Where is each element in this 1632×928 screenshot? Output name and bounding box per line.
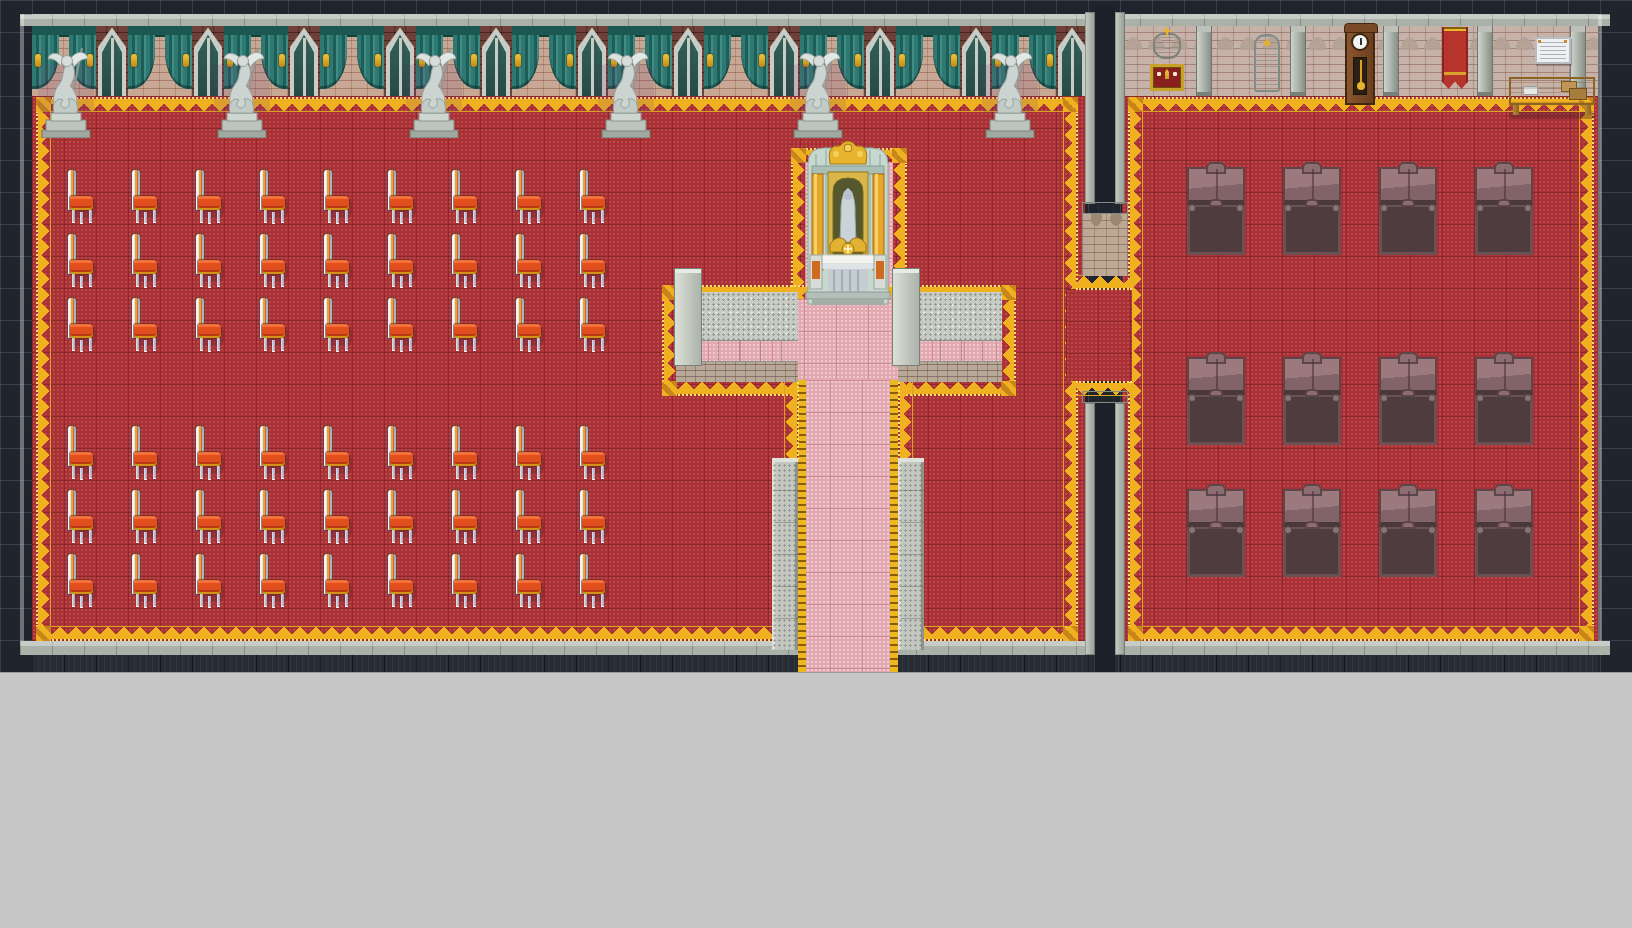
chair-leg <box>520 210 523 222</box>
sanctuary-pillar <box>892 268 920 366</box>
arch-niche-row <box>1122 32 1598 50</box>
chapel-chair[interactable] <box>449 168 479 224</box>
chair-leg <box>584 466 587 478</box>
chair-leg <box>345 274 348 286</box>
bookshelf[interactable] <box>1283 167 1341 255</box>
partition-wall-face <box>1082 214 1128 276</box>
chair-leg <box>264 210 267 222</box>
chapel-chair[interactable] <box>257 232 287 288</box>
chair-leg <box>592 276 595 287</box>
chair-leg <box>153 338 156 350</box>
chapel-chair[interactable] <box>577 296 607 352</box>
chapel-chair[interactable] <box>193 296 223 352</box>
chair-leg <box>400 468 403 479</box>
chapel-chair[interactable] <box>257 424 287 480</box>
chapel-chair[interactable] <box>385 168 415 224</box>
chapel-chair[interactable] <box>385 296 415 352</box>
room-passage-floor <box>1066 289 1132 381</box>
curtain-and-arch-segment <box>320 26 416 96</box>
tassel-icon <box>759 54 765 67</box>
tassel-icon <box>375 54 381 67</box>
chair-seat <box>134 452 157 466</box>
chair-leg <box>409 210 412 222</box>
chair-leg <box>392 594 395 606</box>
chair-leg <box>72 594 75 606</box>
chapel-chair[interactable] <box>449 296 479 352</box>
chair-leg <box>520 594 523 606</box>
chair-leg <box>584 274 587 286</box>
chapel-chair[interactable] <box>577 424 607 480</box>
chapel-chair[interactable] <box>257 488 287 544</box>
chair-seat <box>198 196 221 210</box>
chair-seat <box>454 580 477 594</box>
bookshelf-crest <box>1497 521 1511 529</box>
chair-leg <box>153 210 156 222</box>
corridor-gold-trim <box>784 382 799 460</box>
chapel-chair[interactable] <box>129 552 159 608</box>
chair-leg <box>392 274 395 286</box>
chair-seat <box>262 324 285 338</box>
curtain-and-arch-segment <box>704 26 800 96</box>
chair-leg <box>328 594 331 606</box>
chair-leg <box>520 338 523 350</box>
chair-leg <box>537 210 540 222</box>
chair-leg <box>136 466 139 478</box>
chair-seat <box>134 196 157 210</box>
chapel-chair[interactable] <box>321 296 351 352</box>
chapel-chair[interactable] <box>257 296 287 352</box>
chair-leg <box>144 340 147 351</box>
chair-leg <box>200 274 203 286</box>
chair-seat <box>390 196 413 210</box>
chair-leg <box>153 466 156 478</box>
chapel-chair[interactable] <box>257 168 287 224</box>
chair-leg <box>601 466 604 478</box>
processional-carpet <box>798 380 898 672</box>
chair-seat <box>134 516 157 530</box>
chair-leg <box>136 338 139 350</box>
chair-leg <box>464 212 467 223</box>
chair-seat <box>70 260 93 274</box>
chair-leg <box>281 274 284 286</box>
chair-leg <box>264 466 267 478</box>
chair-leg <box>208 276 211 287</box>
bookshelf[interactable] <box>1187 167 1245 255</box>
chair-leg <box>217 530 220 542</box>
bookshelf-books <box>1379 205 1437 255</box>
tassel-icon <box>707 54 713 67</box>
chair-seat <box>390 324 413 338</box>
chair-seat <box>582 196 605 210</box>
chair-leg <box>72 338 75 350</box>
carpet-gold-rail <box>890 380 898 672</box>
chapel-chair[interactable] <box>577 488 607 544</box>
curtain-and-arch-segment <box>128 26 224 96</box>
bookshelf-crest <box>1497 199 1511 207</box>
bookshelf-crest <box>1401 389 1415 397</box>
chair-leg <box>537 338 540 350</box>
wall-pilaster <box>1290 26 1306 96</box>
chapel-chair[interactable] <box>193 168 223 224</box>
bookshelf[interactable] <box>1187 357 1245 445</box>
bookshelf-books <box>1187 527 1245 577</box>
chapel-chair[interactable] <box>449 552 479 608</box>
chair-leg <box>328 530 331 542</box>
chair-seat <box>518 196 541 210</box>
chair-seat <box>262 516 285 530</box>
chair-seat <box>134 580 157 594</box>
bookshelf-books <box>1283 527 1341 577</box>
angel-statue[interactable] <box>598 42 654 138</box>
bookshelf-crest <box>1209 199 1223 207</box>
chair-seat <box>262 196 285 210</box>
carpet-gold-rail <box>798 380 806 672</box>
chair-leg <box>89 338 92 350</box>
chair-leg <box>264 338 267 350</box>
chair-seat <box>134 324 157 338</box>
bookshelf-crest <box>1305 521 1319 529</box>
tassel-icon <box>855 54 861 67</box>
chair-leg <box>328 210 331 222</box>
passage-gold-trim-top <box>1076 275 1132 290</box>
chair-leg <box>456 594 459 606</box>
chapel-chair[interactable] <box>193 232 223 288</box>
bookshelf[interactable] <box>1187 489 1245 577</box>
chair-leg <box>400 212 403 223</box>
corridor-gold-trim <box>898 382 913 460</box>
chair-seat <box>582 324 605 338</box>
tassel-icon <box>183 54 189 67</box>
chair-leg <box>345 338 348 350</box>
chair-leg <box>473 210 476 222</box>
chapel-chair[interactable] <box>65 296 95 352</box>
chair-leg <box>409 530 412 542</box>
chair-seat <box>390 580 413 594</box>
library-wall <box>1122 26 1598 96</box>
chair-leg <box>281 530 284 542</box>
chair-seat <box>454 452 477 466</box>
chair-leg <box>537 466 540 478</box>
altar[interactable] <box>800 136 896 306</box>
partition-wall-side <box>1115 403 1125 655</box>
editor-empty-area <box>0 672 1632 928</box>
chair-leg <box>144 212 147 223</box>
chair-leg <box>89 530 92 542</box>
chair-leg <box>208 212 211 223</box>
tassel-icon <box>279 54 285 67</box>
chapel-chair[interactable] <box>449 232 479 288</box>
chair-leg <box>336 340 339 351</box>
angel-statue[interactable] <box>38 42 94 138</box>
chair-seat <box>390 452 413 466</box>
bookshelf-books <box>1475 527 1533 577</box>
bookshelf[interactable] <box>1475 357 1533 445</box>
curtain-and-arch-segment <box>512 26 608 96</box>
bookshelf[interactable] <box>1475 167 1533 255</box>
chair-leg <box>72 210 75 222</box>
chapel-chair[interactable] <box>321 168 351 224</box>
chapel-chair[interactable] <box>65 488 95 544</box>
chair-seat <box>70 516 93 530</box>
wall-ledge-top <box>20 14 1610 26</box>
chair-leg <box>144 276 147 287</box>
gothic-arch <box>672 26 704 96</box>
chair-leg <box>80 212 83 223</box>
chair-leg <box>144 468 147 479</box>
chapel-chair[interactable] <box>65 424 95 480</box>
partition-wall-top <box>1095 403 1115 672</box>
chair-leg <box>584 338 587 350</box>
chair-seat <box>518 452 541 466</box>
chair-leg <box>400 340 403 351</box>
chair-leg <box>520 466 523 478</box>
chair-leg <box>601 594 604 606</box>
curtain-and-arch-segment <box>896 26 992 96</box>
chapel-chair[interactable] <box>385 232 415 288</box>
chair-leg <box>473 530 476 542</box>
chair-leg <box>592 340 595 351</box>
chair-leg <box>584 530 587 542</box>
tassel-icon <box>663 54 669 67</box>
chair-leg <box>144 532 147 543</box>
chapel-chair[interactable] <box>513 232 543 288</box>
chair-leg <box>345 530 348 542</box>
chair-leg <box>328 274 331 286</box>
chair-leg <box>464 468 467 479</box>
chair-leg <box>200 594 203 606</box>
bookshelf-crest <box>1497 389 1511 397</box>
chair-leg <box>89 210 92 222</box>
chair-seat <box>262 580 285 594</box>
chapel-chair[interactable] <box>129 296 159 352</box>
chair-leg <box>272 596 275 607</box>
chair-leg <box>528 340 531 351</box>
chapel-chair[interactable] <box>385 488 415 544</box>
chair-leg <box>409 594 412 606</box>
chair-seat <box>262 452 285 466</box>
chapel-chair[interactable] <box>577 552 607 608</box>
chair-leg <box>592 212 595 223</box>
corridor-wall-right <box>898 458 924 650</box>
chapel-chair[interactable] <box>513 168 543 224</box>
chair-leg <box>281 466 284 478</box>
chair-leg <box>409 466 412 478</box>
chair-leg <box>336 532 339 543</box>
chapel-chair[interactable] <box>577 232 607 288</box>
chair-leg <box>264 594 267 606</box>
chair-leg <box>89 466 92 478</box>
bookshelf-books <box>1187 395 1245 445</box>
chair-leg <box>80 340 83 351</box>
bookshelf-crest <box>1209 389 1223 397</box>
chair-seat <box>70 324 93 338</box>
partition-wall-side <box>1115 12 1125 204</box>
chair-seat <box>582 516 605 530</box>
bookshelf-books <box>1379 527 1437 577</box>
chair-leg <box>528 276 531 287</box>
chapel-chair[interactable] <box>385 552 415 608</box>
chair-leg <box>392 530 395 542</box>
chair-seat <box>326 324 349 338</box>
chapel-chair[interactable] <box>65 232 95 288</box>
gothic-arch <box>288 26 320 96</box>
chapel-chair[interactable] <box>65 552 95 608</box>
angel-statue[interactable] <box>406 42 462 138</box>
chapel-chair[interactable] <box>449 424 479 480</box>
chair-leg <box>473 338 476 350</box>
bookshelf[interactable] <box>1379 489 1437 577</box>
bookshelf[interactable] <box>1283 489 1341 577</box>
chapel-chair[interactable] <box>65 168 95 224</box>
bookshelf-crest <box>1209 521 1223 529</box>
chair-seat <box>70 452 93 466</box>
chair-leg <box>456 274 459 286</box>
chair-leg <box>392 466 395 478</box>
chair-leg <box>136 594 139 606</box>
chair-seat <box>326 452 349 466</box>
chapel-chair[interactable] <box>129 232 159 288</box>
angel-statue[interactable] <box>982 42 1038 138</box>
chair-leg <box>272 340 275 351</box>
chair-seat <box>326 516 349 530</box>
chair-seat <box>454 324 477 338</box>
tassel-icon <box>899 54 905 67</box>
chair-leg <box>89 274 92 286</box>
chair-leg <box>80 276 83 287</box>
chair-leg <box>592 468 595 479</box>
chair-leg <box>464 276 467 287</box>
chair-leg <box>153 274 156 286</box>
chair-leg <box>456 210 459 222</box>
chapel-chair[interactable] <box>385 424 415 480</box>
bookshelf-crest <box>1401 199 1415 207</box>
chair-leg <box>281 594 284 606</box>
tassel-icon <box>951 54 957 67</box>
chair-leg <box>264 274 267 286</box>
chair-leg <box>144 596 147 607</box>
chair-seat <box>390 516 413 530</box>
chair-leg <box>272 212 275 223</box>
chair-leg <box>208 468 211 479</box>
chair-leg <box>153 594 156 606</box>
chair-leg <box>400 276 403 287</box>
wall-pilaster <box>1477 26 1493 96</box>
chapel-chair[interactable] <box>449 488 479 544</box>
chair-seat <box>518 580 541 594</box>
chapel-chair[interactable] <box>513 296 543 352</box>
chair-seat <box>454 260 477 274</box>
chair-seat <box>582 260 605 274</box>
chair-leg <box>89 594 92 606</box>
chair-leg <box>208 340 211 351</box>
chapel-chair[interactable] <box>321 552 351 608</box>
partition-wall-top <box>1095 6 1115 204</box>
chair-leg <box>520 274 523 286</box>
chair-leg <box>72 466 75 478</box>
bookshelf[interactable] <box>1379 167 1437 255</box>
angel-statue[interactable] <box>214 42 270 138</box>
chair-leg <box>80 468 83 479</box>
chair-leg <box>328 338 331 350</box>
partition-wall-side <box>1085 12 1095 204</box>
chair-leg <box>584 594 587 606</box>
chapel-chair[interactable] <box>513 552 543 608</box>
chair-leg <box>272 468 275 479</box>
chapel-chair[interactable] <box>193 424 223 480</box>
chapel-chair[interactable] <box>321 488 351 544</box>
bookshelf-crest <box>1305 389 1319 397</box>
gothic-arch <box>864 26 896 96</box>
chapel-chair[interactable] <box>193 488 223 544</box>
chapel-chair[interactable] <box>129 424 159 480</box>
chair-leg <box>520 530 523 542</box>
corridor-wall-left <box>772 458 798 650</box>
chapel-chair[interactable] <box>321 424 351 480</box>
chair-leg <box>217 338 220 350</box>
chair-seat <box>198 580 221 594</box>
chair-leg <box>537 530 540 542</box>
chair-leg <box>208 532 211 543</box>
map-canvas[interactable] <box>0 0 1632 928</box>
bookshelf-books <box>1379 395 1437 445</box>
chapel-chair[interactable] <box>513 488 543 544</box>
angel-statue[interactable] <box>790 42 846 138</box>
bookshelf[interactable] <box>1283 357 1341 445</box>
chair-leg <box>456 466 459 478</box>
chair-leg <box>200 210 203 222</box>
chair-leg <box>272 532 275 543</box>
chair-leg <box>601 210 604 222</box>
bookshelf[interactable] <box>1379 357 1437 445</box>
chair-leg <box>217 274 220 286</box>
chapel-chair[interactable] <box>513 424 543 480</box>
chair-leg <box>200 338 203 350</box>
chair-leg <box>473 466 476 478</box>
chair-leg <box>281 338 284 350</box>
chair-seat <box>518 324 541 338</box>
wall-ledge-left <box>20 14 32 655</box>
chair-leg <box>217 594 220 606</box>
chair-leg <box>336 596 339 607</box>
chair-leg <box>217 210 220 222</box>
chair-seat <box>198 260 221 274</box>
chapel-chair[interactable] <box>129 168 159 224</box>
bookshelf-books <box>1283 395 1341 445</box>
chapel-chair[interactable] <box>577 168 607 224</box>
partition-wall-cap <box>1082 202 1128 214</box>
tassel-icon <box>471 54 477 67</box>
chair-leg <box>345 466 348 478</box>
partition-wall-cap <box>1082 391 1128 403</box>
chair-leg <box>473 594 476 606</box>
chair-seat <box>454 516 477 530</box>
chair-seat <box>134 260 157 274</box>
chair-seat <box>582 580 605 594</box>
chapel-chair[interactable] <box>321 232 351 288</box>
chapel-chair[interactable] <box>257 552 287 608</box>
bookshelf-books <box>1187 205 1245 255</box>
tassel-icon <box>1047 54 1053 67</box>
chair-leg <box>592 596 595 607</box>
bookshelf[interactable] <box>1475 489 1533 577</box>
chapel-chair[interactable] <box>129 488 159 544</box>
chair-leg <box>409 338 412 350</box>
chair-leg <box>80 596 83 607</box>
chair-seat <box>518 516 541 530</box>
chapel-chair[interactable] <box>193 552 223 608</box>
tassel-icon <box>131 54 137 67</box>
chair-leg <box>473 274 476 286</box>
